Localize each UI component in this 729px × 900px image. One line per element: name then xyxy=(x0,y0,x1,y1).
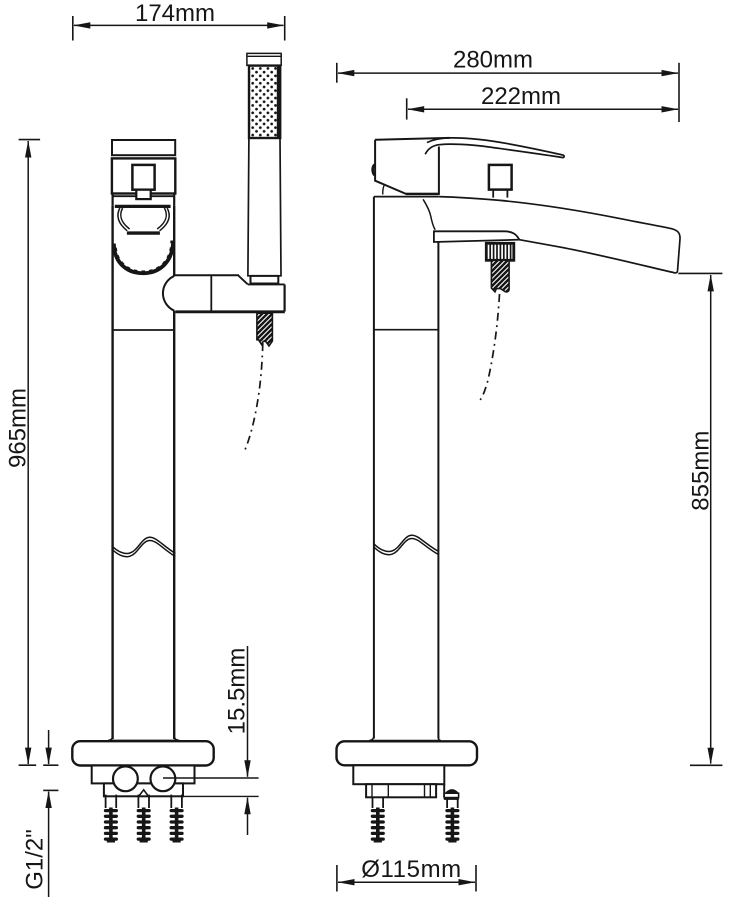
svg-text:174mm: 174mm xyxy=(135,0,215,27)
svg-text:222mm: 222mm xyxy=(481,83,561,110)
svg-text:Ø115mm: Ø115mm xyxy=(361,856,462,883)
svg-text:855mm: 855mm xyxy=(687,431,714,511)
svg-text:965mm: 965mm xyxy=(5,388,32,468)
svg-text:15.5mm: 15.5mm xyxy=(224,648,251,735)
svg-text:G1/2": G1/2" xyxy=(22,829,49,890)
svg-text:280mm: 280mm xyxy=(453,47,533,74)
